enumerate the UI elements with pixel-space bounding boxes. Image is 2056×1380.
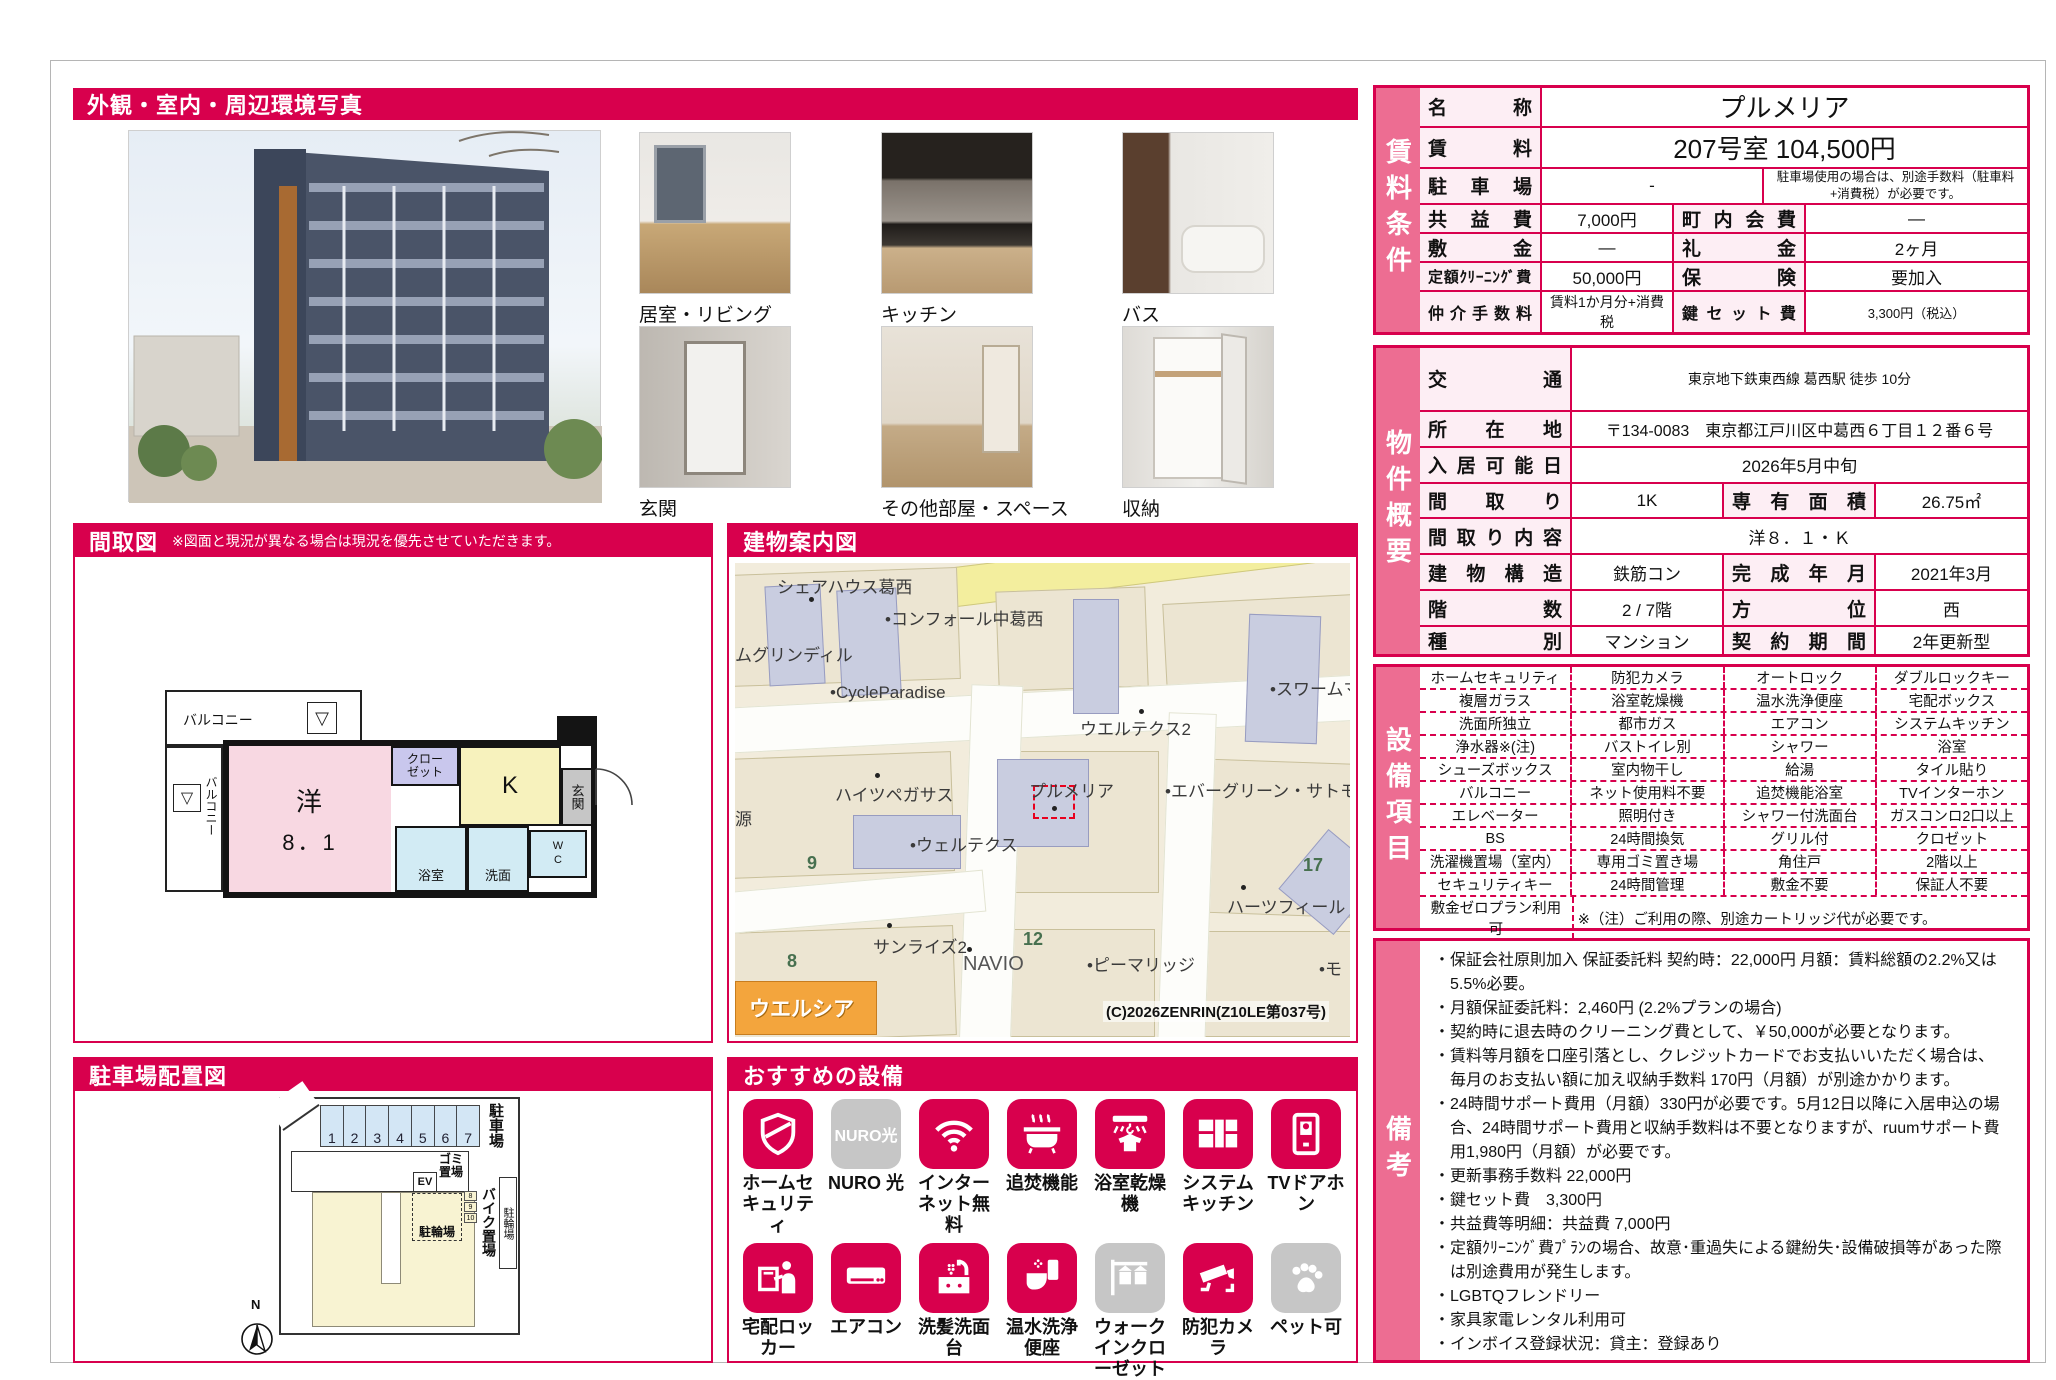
overview-side-label: 物件概要 — [1376, 348, 1420, 654]
ev-label: EV — [418, 1176, 433, 1188]
room-western: 洋 8．1 — [229, 746, 391, 892]
remark-item: 共益費等明細：共益費 7,000円 — [1434, 1213, 2013, 1237]
remark-item: 24時間サポート費用（月額）330円が必要です。5月12日以降に入居申込の場合、… — [1434, 1093, 2013, 1165]
nuro-icon: NURO光 — [831, 1099, 901, 1169]
feature-cell: BS — [1420, 828, 1570, 849]
feature-cell: 保証人不要 — [1875, 874, 2027, 895]
bicycle-area: 駐輪場 — [412, 1193, 462, 1241]
paw-icon — [1271, 1243, 1341, 1313]
common-fee-label: 共益費 — [1420, 205, 1540, 232]
remark-item: インボイス登録状況：貸主：登録あり — [1434, 1333, 2013, 1357]
remark-item: 保証会社原則加入 保証委託料 契約時：22,000円 月額：賃料総額の2.2%又… — [1434, 949, 2013, 997]
feature-cell: ホームセキュリティ — [1420, 667, 1570, 688]
row-move-in: 入居可能日 2026年5月中旬 — [1420, 446, 2027, 482]
room-western-label: 洋 — [296, 782, 324, 819]
toilet-icon — [1007, 1243, 1077, 1313]
equipment-shampoo-sink: 洗髪洗面台 — [911, 1243, 997, 1380]
building-illustration — [129, 131, 602, 503]
equipment-free-internet: インターネット無料 — [911, 1099, 997, 1237]
map-dot — [887, 923, 892, 928]
photo-other-room — [881, 326, 1033, 488]
row-layout-detail: 間取り内容 洋８．１・Ｋ — [1420, 517, 2027, 553]
balcony-top: バルコニー ▽ — [165, 690, 362, 746]
map-label: サンライズ2 — [873, 933, 967, 958]
feature-cell: ダブルロックキー — [1875, 667, 2027, 688]
feature-cell: バストイレ別 — [1570, 736, 1722, 757]
remark-item: 鍵セット費 3,300円 — [1434, 1189, 2013, 1213]
entrance-door — [684, 341, 746, 475]
map-dot — [1139, 709, 1144, 714]
equipment-delivery-locker: 宅配ロッカー — [735, 1243, 821, 1380]
equipment-system-kitchen: システムキッチン — [1175, 1099, 1261, 1237]
feature-cell: 24時間管理 — [1570, 874, 1722, 895]
feature-cell: 複層ガラス — [1420, 690, 1570, 711]
features-footer-note: ※（注）ご利用の際、別途カートリッジ代が必要です。 — [1572, 897, 2027, 939]
photo-entrance — [639, 326, 791, 488]
remarks-side-label: 備考 — [1376, 941, 1420, 1360]
parking-fee-label: 駐車場 — [1420, 169, 1540, 203]
rent-value: 207号室 104,500円 — [1540, 128, 2027, 167]
map-section: 建物案内図 シェアハウス葛西 •コンフォール中葛西 ムグリンディ — [727, 523, 1358, 1043]
map-building — [764, 584, 825, 687]
features-row: セキュリティキー24時間管理敷金不要保証人不要 — [1420, 872, 2027, 895]
features-row: 洗濯機置場（室内）専用ゴミ置き場角住戸2階以上 — [1420, 849, 2027, 872]
equipment-section: おすすめの設備 ホームセキュリティ NURO光 NURO 光 インターネット無料… — [727, 1057, 1358, 1363]
photo-caption: 居室・リビング — [639, 300, 772, 327]
feature-cell: 照明付き — [1570, 805, 1722, 826]
row-deposit: 敷金 ― 礼金 2ヶ月 — [1420, 232, 2027, 261]
floorplan-drawing: バルコニー ▽ バルコニー ▽ 洋 8．1 クロー ゼット K 玄関 浴室 洗面 — [105, 640, 670, 930]
equipment-label: 温水洗浄便座 — [999, 1317, 1085, 1359]
feature-cell: 洗濯機置場（室内） — [1420, 851, 1570, 872]
key-set-value: 3,300円（税込） — [1804, 292, 2027, 332]
remark-item: 賃料等月額を口座引落とし、クレジットカードでお支払いいただく場合は、 毎月のお支… — [1434, 1045, 2013, 1093]
floorplan-section: 間取図 ※図面と現況が異なる場合は現況を優先させていただきます。 バルコニー ▽… — [73, 523, 713, 1043]
remark-item: 家具家電レンタル利用可 — [1434, 1309, 2013, 1333]
feature-cell: バルコニー — [1420, 782, 1570, 803]
room-closet: クロー ゼット — [391, 746, 459, 786]
type-value: マンション — [1570, 627, 1722, 654]
ev-box: EV — [413, 1172, 437, 1192]
mini-stall: 8 — [464, 1191, 477, 1201]
row-brokerage: 仲介手数料 賃料1か月分+消費税 鍵セット費 3,300円（税込） — [1420, 290, 2027, 332]
room-wc: WC — [529, 830, 587, 878]
photo-caption: 玄関 — [639, 494, 677, 521]
equipment-label: ペット可 — [1263, 1317, 1349, 1338]
parking-stall: 1 — [321, 1106, 343, 1146]
features-row: シューズボックス室内物干し給湯タイル貼り — [1420, 757, 2027, 780]
row-name: 名称 プルメリア — [1420, 88, 2027, 126]
bike-area-label: バイク置場 — [479, 1187, 499, 1257]
parking-stall: 4 — [388, 1106, 411, 1146]
map-building — [1073, 599, 1119, 714]
area-value: 26.75㎡ — [1874, 484, 2027, 518]
row-access: 交通 東京地下鉄東西線 葛西駅 徒歩 10分 — [1420, 348, 2027, 410]
feature-cell: システムキッチン — [1875, 713, 2027, 734]
features-table: 設備項目 ホームセキュリティ防犯カメラオートロックダブルロックキー 複層ガラス浴… — [1373, 664, 2030, 931]
map-label: ムグリンディル — [735, 641, 853, 666]
row-cleaning: 定額ｸﾘｰﾆﾝｸﾞ費 50,000円 保険 要加入 — [1420, 261, 2027, 290]
feature-cell: 洗面所独立 — [1420, 713, 1570, 734]
cctv-icon — [1183, 1243, 1253, 1313]
map-label: •ウェルテクス — [910, 831, 1017, 856]
parking-drawing: 1 2 3 4 5 6 7 駐車場 EV ゴミ置場 駐輪場 8 9 10 バイク… — [75, 1091, 711, 1363]
contract-value: 2年更新型 — [1874, 627, 2027, 654]
cleaning-fee-value: 50,000円 — [1540, 263, 1672, 290]
living-window — [654, 145, 706, 223]
feature-cell: ネット使用料不要 — [1570, 782, 1722, 803]
area-label: 専有面積 — [1722, 484, 1874, 518]
cleaning-fee-label: 定額ｸﾘｰﾆﾝｸﾞ費 — [1420, 263, 1540, 290]
garbage-label: ゴミ置場 — [439, 1153, 469, 1179]
map-header: 建物案内図 — [729, 525, 1356, 557]
row-common-fee: 共益費 7,000円 町内会費 ― — [1420, 203, 2027, 232]
address-value: 〒134-0083 東京都江戸川区中葛西６丁目１２番６号 — [1570, 412, 2027, 446]
wc-label: WC — [552, 840, 564, 868]
equipment-security-camera: 防犯カメラ — [1175, 1243, 1261, 1380]
deposit-value: ― — [1540, 234, 1672, 261]
contract-label: 契約期間 — [1722, 627, 1874, 654]
feature-cell: シャワー — [1723, 736, 1875, 757]
equipment-bath-dryer: 浴室乾燥機 — [1087, 1099, 1173, 1237]
feature-cell: 給湯 — [1723, 759, 1875, 780]
layout-value: 1K — [1570, 484, 1722, 518]
equipment-nuro: NURO光 NURO 光 — [823, 1099, 909, 1237]
remark-item: 更新事務手数料 22,000円 — [1434, 1165, 2013, 1189]
lightwell — [381, 1192, 401, 1284]
feature-cell: オートロック — [1723, 667, 1875, 688]
bicycle-label: 駐輪場 — [419, 1223, 455, 1240]
map-dot — [875, 773, 880, 778]
map-dot — [967, 947, 972, 952]
rent-label: 賃料 — [1420, 128, 1540, 167]
feature-cell: 追焚機能浴室 — [1723, 782, 1875, 803]
bicycle-right-label: 駐輪場 — [500, 1207, 516, 1240]
kitchen-icon — [1183, 1099, 1253, 1169]
parking-header: 駐車場配置図 — [75, 1059, 711, 1091]
remark-item: 定額ｸﾘｰﾆﾝｸﾞ費ﾌﾟﾗﾝの場合、故意･重過失による鍵紛失･設備破損等があった… — [1434, 1237, 2013, 1285]
map-number: 8 — [787, 951, 797, 972]
balcony-left-label: バルコニー — [203, 776, 220, 836]
insurance-value: 要加入 — [1804, 263, 2027, 290]
brokerage-value: 賃料1か月分+消費税 — [1540, 292, 1672, 332]
equipment-washlet: 温水洗浄便座 — [999, 1243, 1085, 1380]
balcony-hatch-box: ▽ — [307, 702, 337, 734]
closet-door-open — [1221, 333, 1247, 485]
feature-cell: エアコン — [1723, 713, 1875, 734]
association-fee-label: 町内会費 — [1672, 205, 1804, 232]
photos-header: 外観・室内・周辺環境写真 — [73, 88, 1358, 120]
completion-value: 2021年3月 — [1874, 555, 2027, 589]
remark-item: LGBTQフレンドリー — [1434, 1285, 2013, 1309]
direction-value: 西 — [1874, 591, 2027, 625]
common-fee-value: 7,000円 — [1540, 205, 1672, 232]
photo-building-exterior — [128, 130, 601, 502]
feature-cell: 浴室乾燥機 — [1570, 690, 1722, 711]
room-door — [982, 345, 1020, 453]
feature-cell: シューズボックス — [1420, 759, 1570, 780]
map-label: NAVIO — [963, 953, 1024, 976]
door-swing-arc — [595, 768, 633, 806]
mini-stall-number: 8 — [469, 1193, 473, 1200]
photo-caption: 収納 — [1122, 494, 1160, 521]
locker-icon — [743, 1243, 813, 1313]
sink-icon — [919, 1243, 989, 1313]
layout-label: 間取り — [1420, 484, 1570, 518]
equipment-label: インターネット無料 — [911, 1173, 997, 1237]
row-structure: 建物構造 鉄筋コン 完成年月 2021年3月 — [1420, 553, 2027, 589]
mini-stall: 9 — [464, 1202, 477, 1212]
parking-area-label: 駐車場 — [485, 1103, 506, 1148]
key-money-label: 礼金 — [1672, 234, 1804, 261]
walkin-closet-icon — [1095, 1243, 1165, 1313]
room-western-size: 8．1 — [282, 825, 337, 857]
features-row: エレベーター照明付きシャワー付洗面台ガスコンロ2口以上 — [1420, 803, 2027, 826]
equipment-header: おすすめの設備 — [729, 1059, 1356, 1091]
feature-cell: 2階以上 — [1875, 851, 2027, 872]
bathtub-icon — [1007, 1099, 1077, 1169]
map-label: •コンフォール中葛西 — [885, 605, 1043, 630]
balcony-hatch-box: ▽ — [173, 784, 201, 812]
mini-stall: 10 — [464, 1213, 477, 1223]
feature-cell: シャワー付洗面台 — [1723, 805, 1875, 826]
parking-stall: 2 — [343, 1106, 366, 1146]
equipment-label: 浴室乾燥機 — [1087, 1173, 1173, 1215]
mini-stall-number: 10 — [467, 1215, 475, 1222]
rental-side-label: 賃料条件 — [1376, 88, 1420, 332]
name-label: 名称 — [1420, 88, 1540, 126]
map-label: ウエルテクス2 — [1080, 715, 1191, 740]
parking-stall: 5 — [411, 1106, 434, 1146]
row-layout: 間取り 1K 専有面積 26.75㎡ — [1420, 482, 2027, 518]
map-dot — [1052, 806, 1057, 811]
map-block — [995, 586, 1148, 691]
move-in-label: 入居可能日 — [1420, 448, 1570, 482]
access-value: 東京地下鉄東西線 葛西駅 徒歩 10分 — [1570, 348, 2027, 410]
equipment-label: NURO 光 — [823, 1173, 909, 1194]
map-label: ハーツフィールド — [1227, 893, 1350, 918]
equipment-label: 追焚機能 — [999, 1173, 1085, 1194]
remark-item: 月額保証委託料：2,460円 (2.2%プランの場合) — [1434, 997, 2013, 1021]
layout-detail-value: 洋８．１・Ｋ — [1570, 519, 2027, 553]
wall-pillar — [557, 716, 597, 746]
rental-conditions-table: 賃料条件 名称 プルメリア 賃料 207号室 104,500円 駐車場 - 駐車… — [1373, 85, 2030, 335]
photos-section: 外観・室内・周辺環境写真 居室 — [73, 88, 1358, 518]
row-parking: 駐車場 - 駐車場使用の場合は、別途手数料（駐車料+消費税）が必要です。 — [1420, 167, 2027, 203]
parking-stall: 3 — [365, 1106, 388, 1146]
feature-cell: 浴室 — [1875, 736, 2027, 757]
type-label: 種別 — [1420, 627, 1570, 654]
map-label: •モ — [1319, 955, 1342, 980]
parking-fee-note: 駐車場使用の場合は、別途手数料（駐車料+消費税）が必要です。 — [1762, 169, 2027, 203]
feature-cell: 都市ガス — [1570, 713, 1722, 734]
room-bath: 浴室 — [395, 826, 467, 892]
balcony-left: バルコニー ▽ — [165, 746, 223, 892]
washroom-label: 洗面 — [485, 865, 511, 884]
equipment-label: 洗髪洗面台 — [911, 1317, 997, 1359]
room-kitchen: K — [459, 746, 561, 826]
parking-stall: 7 — [456, 1106, 479, 1146]
equipment-label: システムキッチン — [1175, 1173, 1261, 1215]
floors-label: 階数 — [1420, 591, 1570, 625]
parking-section: 駐車場配置図 1 2 3 4 5 6 7 駐車場 EV ゴミ置場 駐輪場 8 9… — [73, 1057, 713, 1363]
floorplan-note: ※図面と現況が異なる場合は現況を優先させていただきます。 — [172, 531, 560, 551]
equipment-grid: ホームセキュリティ NURO光 NURO 光 インターネット無料 追焚機能 浴室… — [735, 1099, 1354, 1361]
feature-cell: 防犯カメラ — [1570, 667, 1722, 688]
remarks-section: 備考 保証会社原則加入 保証委託料 契約時：22,000円 月額：賃料総額の2.… — [1373, 938, 2030, 1363]
map-title: 建物案内図 — [743, 525, 858, 557]
map-label: •CycleParadise — [830, 683, 946, 703]
bath-label: 浴室 — [418, 865, 444, 884]
feature-cell: 浄水器※(注) — [1420, 736, 1570, 757]
parking-title: 駐車場配置図 — [89, 1059, 227, 1091]
equipment-label: ホームセキュリティ — [735, 1173, 821, 1237]
row-rent: 賃料 207号室 104,500円 — [1420, 126, 2027, 167]
wifi-icon — [919, 1099, 989, 1169]
photos-title: 外観・室内・周辺環境写真 — [87, 88, 363, 120]
parking-stalls-row: 1 2 3 4 5 6 7 — [320, 1105, 480, 1147]
map-label: ハイツペガサス — [835, 781, 953, 806]
completion-label: 完成年月 — [1722, 555, 1874, 589]
equipment-label: TVドアホン — [1263, 1173, 1349, 1215]
map-label: •スワームマ — [1270, 675, 1350, 700]
doorphone-icon — [1271, 1099, 1341, 1169]
shield-icon — [743, 1099, 813, 1169]
floorplan-title: 間取図 — [89, 525, 158, 557]
key-set-label: 鍵セット費 — [1672, 292, 1804, 332]
parking-stall: 6 — [434, 1106, 457, 1146]
feature-cell: クロゼット — [1875, 828, 2027, 849]
aircon-icon — [831, 1243, 901, 1313]
compass — [235, 1307, 279, 1359]
room-washroom: 洗面 — [467, 826, 529, 892]
structure-label: 建物構造 — [1420, 555, 1570, 589]
parking-fee-value: - — [1540, 169, 1762, 203]
map-dot — [1241, 885, 1246, 890]
equipment-walkin-closet: ウォークインクローゼット — [1087, 1243, 1173, 1380]
map-label-target: プルメリア — [1029, 777, 1114, 802]
equipment-row-2: 宅配ロッカー エアコン 洗髪洗面台 温水洗浄便座 ウォークインクローゼット 防犯… — [735, 1243, 1354, 1380]
map-number: 9 — [807, 853, 817, 874]
bathtub — [1181, 225, 1265, 273]
closet-opening — [1153, 337, 1223, 479]
map-copyright: (C)2026ZENRIN(Z10LE第037号) — [1103, 1001, 1329, 1022]
equipment-reheating: 追焚機能 — [999, 1099, 1085, 1237]
feature-cell: 敷金不要 — [1723, 874, 1875, 895]
entrance-label: 玄関 — [568, 784, 587, 810]
compass-n-label: N — [251, 1297, 260, 1312]
feature-cell: グリル付 — [1723, 828, 1875, 849]
features-row: 洗面所独立都市ガスエアコンシステムキッチン — [1420, 711, 2027, 734]
features-footer-label: 敷金ゼロプラン利用可 — [1420, 897, 1572, 939]
feature-cell: 室内物干し — [1570, 759, 1722, 780]
floorplan-header: 間取図 ※図面と現況が異なる場合は現況を優先させていただきます。 — [75, 525, 711, 557]
map-canvas: シェアハウス葛西 •コンフォール中葛西 ムグリンディル •CycleParadi… — [735, 563, 1350, 1037]
brokerage-label: 仲介手数料 — [1420, 292, 1540, 332]
feature-cell: タイル貼り — [1875, 759, 2027, 780]
association-fee-value: ― — [1804, 205, 2027, 232]
feature-cell: 角住戸 — [1723, 851, 1875, 872]
property-overview-table: 物件概要 交通 東京地下鉄東西線 葛西駅 徒歩 10分 所在地 〒134-008… — [1373, 345, 2030, 657]
closet-shelf — [1155, 371, 1221, 377]
equipment-row-1: ホームセキュリティ NURO光 NURO 光 インターネット無料 追焚機能 浴室… — [735, 1099, 1354, 1237]
feature-cell: 専用ゴミ置き場 — [1570, 851, 1722, 872]
deposit-label: 敷金 — [1420, 234, 1540, 261]
mini-stall-number: 9 — [469, 1204, 473, 1211]
closet-label: ゼット — [407, 766, 443, 779]
map-label: 源 — [735, 805, 752, 830]
equipment-title: おすすめの設備 — [743, 1059, 904, 1091]
feature-cell: TVインターホン — [1875, 782, 2027, 803]
features-footer-row: 敷金ゼロプラン利用可 ※（注）ご利用の際、別途カートリッジ代が必要です。 — [1420, 895, 2027, 939]
layout-detail-label: 間取り内容 — [1420, 519, 1570, 553]
direction-label: 方位 — [1722, 591, 1874, 625]
bicycle-right-area: 駐輪場 — [499, 1177, 517, 1269]
equipment-tv-doorphone: TVドアホン — [1263, 1099, 1349, 1237]
insurance-label: 保険 — [1672, 263, 1804, 290]
structure-value: 鉄筋コン — [1570, 555, 1722, 589]
address-label: 所在地 — [1420, 412, 1570, 446]
features-row: 複層ガラス浴室乾燥機温水洗浄便座宅配ボックス — [1420, 688, 2027, 711]
photo-bath — [1122, 132, 1274, 294]
equipment-aircon: エアコン — [823, 1243, 909, 1380]
feature-cell: 温水洗浄便座 — [1723, 690, 1875, 711]
features-row: ホームセキュリティ防犯カメラオートロックダブルロックキー — [1420, 667, 2027, 688]
equipment-home-security: ホームセキュリティ — [735, 1099, 821, 1237]
balcony-top-label: バルコニー — [183, 710, 253, 730]
kitchen-label: K — [502, 772, 518, 800]
photo-living — [639, 132, 791, 294]
row-type: 種別 マンション 契約期間 2年更新型 — [1420, 625, 2027, 654]
map-label: •ピーマリッジ — [1087, 951, 1195, 976]
photo-storage — [1122, 326, 1274, 488]
features-row: BS24時間換気グリル付クロゼット — [1420, 826, 2027, 849]
feature-cell: セキュリティキー — [1420, 874, 1570, 895]
room-entrance: 玄関 — [561, 768, 593, 826]
photo-kitchen — [881, 132, 1033, 294]
equipment-label: 宅配ロッカー — [735, 1317, 821, 1359]
map-label: •エバーグリーン・サトモ — [1165, 777, 1350, 802]
feature-cell: 宅配ボックス — [1875, 690, 2027, 711]
move-in-value: 2026年5月中旬 — [1570, 448, 2027, 482]
remark-item: 契約時に退去時のクリーニング費として、￥50,000が必要となります。 — [1434, 1021, 2013, 1045]
equipment-label: 防犯カメラ — [1175, 1317, 1261, 1359]
photo-caption: バス — [1122, 300, 1160, 327]
map-label: シェアハウス葛西 — [777, 573, 912, 598]
feature-cell: 24時間換気 — [1570, 828, 1722, 849]
nuro-tile-text: NURO光 — [834, 1122, 897, 1146]
name-value: プルメリア — [1540, 88, 2027, 126]
feature-cell: ガスコンロ2口以上 — [1875, 805, 2027, 826]
floors-value: 2 / 7階 — [1570, 591, 1722, 625]
photo-caption: キッチン — [881, 300, 957, 327]
bath-dryer-icon — [1095, 1099, 1165, 1169]
equipment-pets-allowed: ペット可 — [1263, 1243, 1349, 1380]
map-number: 12 — [1023, 929, 1043, 950]
row-floors: 階数 2 / 7階 方位 西 — [1420, 589, 2027, 625]
equipment-label: エアコン — [823, 1317, 909, 1338]
feature-cell: エレベーター — [1420, 805, 1570, 826]
remarks-list: 保証会社原則加入 保証委託料 契約時：22,000円 月額：賃料総額の2.2%又… — [1420, 941, 2027, 1365]
key-money-value: 2ヶ月 — [1804, 234, 2027, 261]
access-label: 交通 — [1420, 348, 1570, 410]
row-address: 所在地 〒134-0083 東京都江戸川区中葛西６丁目１２番６号 — [1420, 410, 2027, 446]
photo-caption: その他部屋・スペース — [881, 494, 1069, 521]
features-row: 浄水器※(注)バストイレ別シャワー浴室 — [1420, 734, 2027, 757]
features-side-label: 設備項目 — [1376, 667, 1420, 928]
map-number: 17 — [1303, 855, 1323, 876]
map-wellcia-label: ウエルシア — [749, 993, 854, 1023]
